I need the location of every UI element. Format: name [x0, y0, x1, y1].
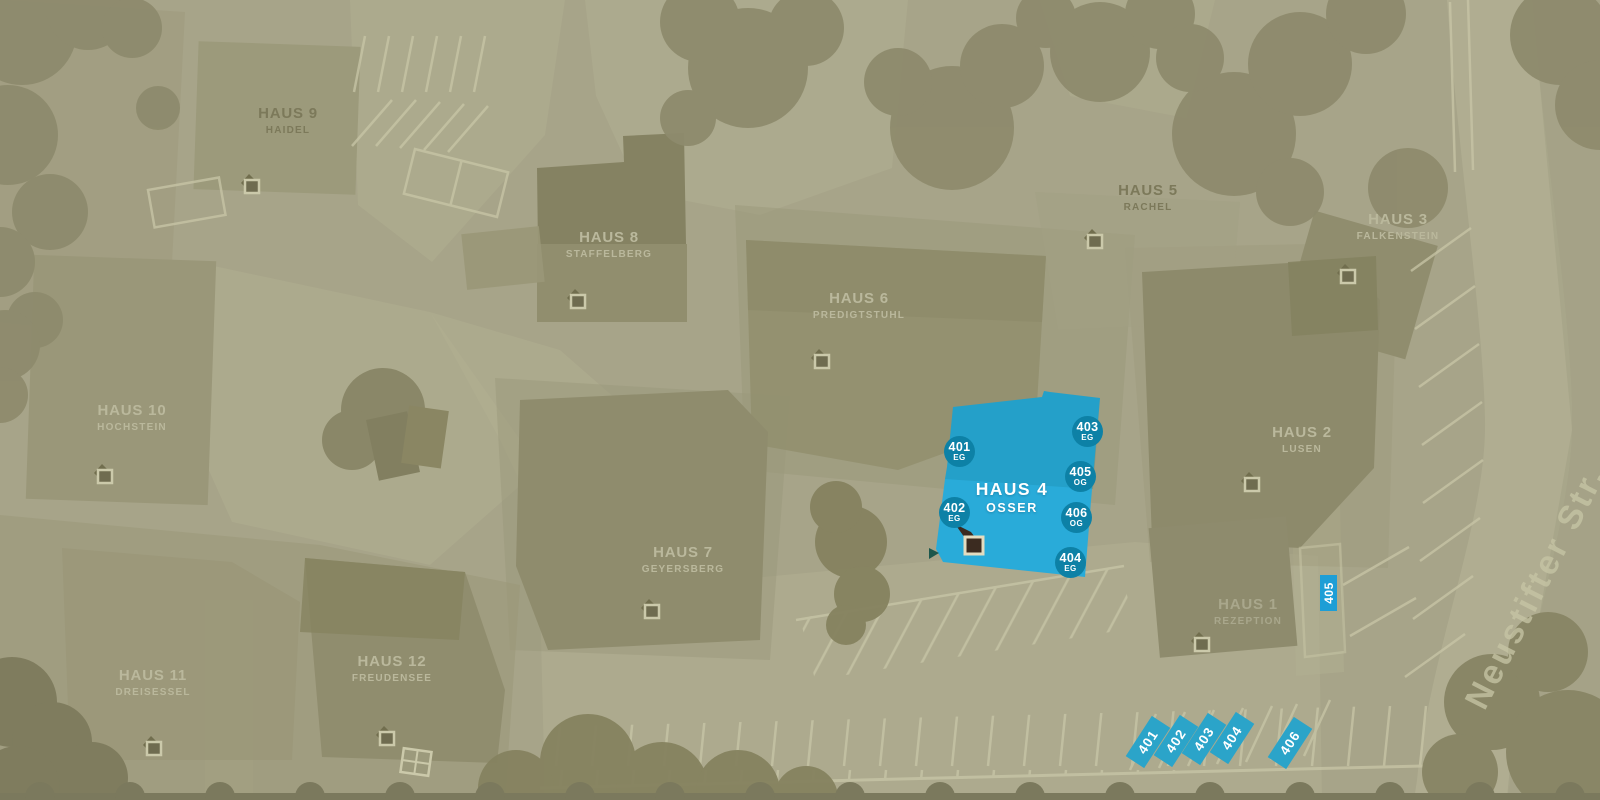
building-haus-7[interactable] [516, 390, 768, 650]
room-floor: EG [953, 454, 966, 462]
house-label-haus-11[interactable]: HAUS 11 DREISESSEL [115, 668, 190, 698]
house-name: HAUS 10 [97, 403, 167, 418]
house-name: HAUS 1 [1214, 597, 1282, 612]
house-name: HAUS 6 [813, 291, 905, 306]
house-label-haus-10[interactable]: HAUS 10 HOCHSTEIN [97, 403, 167, 433]
parking-spot-number: 405 [1322, 582, 1336, 604]
house-label-haus-7[interactable]: HAUS 7 GEYERSBERG [642, 545, 725, 575]
house-name: HAUS 11 [115, 668, 190, 683]
house-name: HAUS 5 [1118, 183, 1178, 198]
house-subtitle: FREUDENSEE [352, 674, 432, 684]
house-label-haus-6[interactable]: HAUS 6 PREDIGTSTUHL [813, 291, 905, 321]
room-badge-403[interactable]: 403 EG [1072, 416, 1103, 447]
building-haus-1[interactable] [1149, 516, 1298, 658]
room-number: 401 [948, 441, 970, 453]
room-floor: EG [1081, 434, 1094, 442]
room-number: 403 [1076, 421, 1098, 433]
room-badge-402[interactable]: 402 EG [939, 497, 970, 528]
site-map-terrain [0, 0, 1600, 800]
room-number: 406 [1065, 507, 1087, 519]
house-subtitle: HAIDEL [258, 126, 318, 136]
house-subtitle: RACHEL [1118, 203, 1178, 213]
room-badge-404[interactable]: 404 EG [1055, 547, 1086, 578]
house-label-haus-5[interactable]: HAUS 5 RACHEL [1118, 183, 1178, 213]
house-subtitle: GEYERSBERG [642, 565, 725, 575]
house-name: HAUS 9 [258, 106, 318, 121]
house-name: HAUS 2 [1272, 425, 1332, 440]
house-label-haus-1[interactable]: HAUS 1 REZEPTION [1214, 597, 1282, 627]
house-name: HAUS 7 [642, 545, 725, 560]
room-floor: EG [1064, 565, 1077, 573]
house-label-haus-9[interactable]: HAUS 9 HAIDEL [258, 106, 318, 136]
house-subtitle: STAFFELBERG [566, 250, 652, 260]
room-badge-406[interactable]: 406 OG [1061, 502, 1092, 533]
house-label-haus-12[interactable]: HAUS 12 FREUDENSEE [352, 654, 432, 684]
room-floor: OG [1074, 479, 1087, 487]
room-number: 404 [1059, 552, 1081, 564]
house-subtitle: REZEPTION [1214, 617, 1282, 627]
house-name: HAUS 3 [1357, 212, 1440, 227]
room-floor: OG [1070, 520, 1083, 528]
house-name: HAUS 12 [352, 654, 432, 669]
room-floor: EG [948, 515, 961, 523]
house-name: HAUS 8 [566, 230, 652, 245]
house-subtitle: FALKENSTEIN [1357, 232, 1440, 242]
house-subtitle: DREISESSEL [115, 688, 190, 698]
room-number: 402 [943, 502, 965, 514]
house-subtitle: PREDIGTSTUHL [813, 311, 905, 321]
house-subtitle: LUSEN [1272, 445, 1332, 455]
parking-spot-405: 405 [1320, 575, 1337, 611]
site-plan: HAUS 9 HAIDEL HAUS 8 STAFFELBERG HAUS 5 … [0, 0, 1600, 800]
house-label-haus-2[interactable]: HAUS 2 LUSEN [1272, 425, 1332, 455]
room-badge-401[interactable]: 401 EG [944, 436, 975, 467]
skylight-icon [400, 748, 431, 776]
room-number: 405 [1069, 466, 1091, 478]
building-haus-10[interactable] [26, 255, 216, 505]
house-label-haus-4[interactable]: HAUS 4 OSSER [976, 481, 1049, 514]
room-badge-405[interactable]: 405 OG [1065, 461, 1096, 492]
house-name: HAUS 4 [976, 481, 1049, 498]
house-label-haus-8[interactable]: HAUS 8 STAFFELBERG [566, 230, 652, 260]
house-subtitle: OSSER [976, 502, 1049, 514]
house-subtitle: HOCHSTEIN [97, 423, 167, 433]
house-label-haus-3[interactable]: HAUS 3 FALKENSTEIN [1357, 212, 1440, 242]
